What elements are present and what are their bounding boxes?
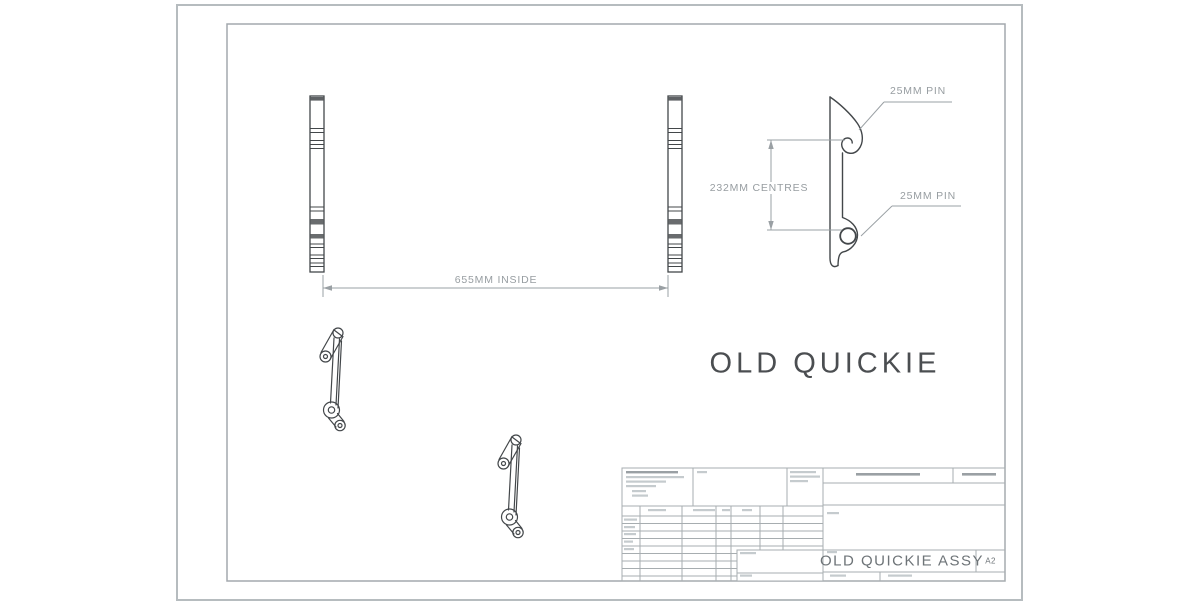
pin-centres-dimension-label: 232MM CENTRES <box>708 182 811 194</box>
title-block-sheet-size: A2 <box>985 557 995 566</box>
drawing-name-label: OLD QUICKIE <box>710 348 941 381</box>
drawing-linework <box>0 0 1200 610</box>
right-channel-bar <box>668 96 682 272</box>
inside-width-dimension-label: 655MM INSIDE <box>455 274 538 286</box>
pin-top-label: 25MM PIN <box>890 85 946 97</box>
title-block-drawing-title: OLD QUICKIE ASSY <box>820 553 984 570</box>
cad-drawing-sheet: 655MM INSIDE 232MM CENTRES 25MM PIN 25MM… <box>0 0 1200 610</box>
left-channel-bar <box>310 96 324 272</box>
pin-bottom-label: 25MM PIN <box>900 190 956 202</box>
